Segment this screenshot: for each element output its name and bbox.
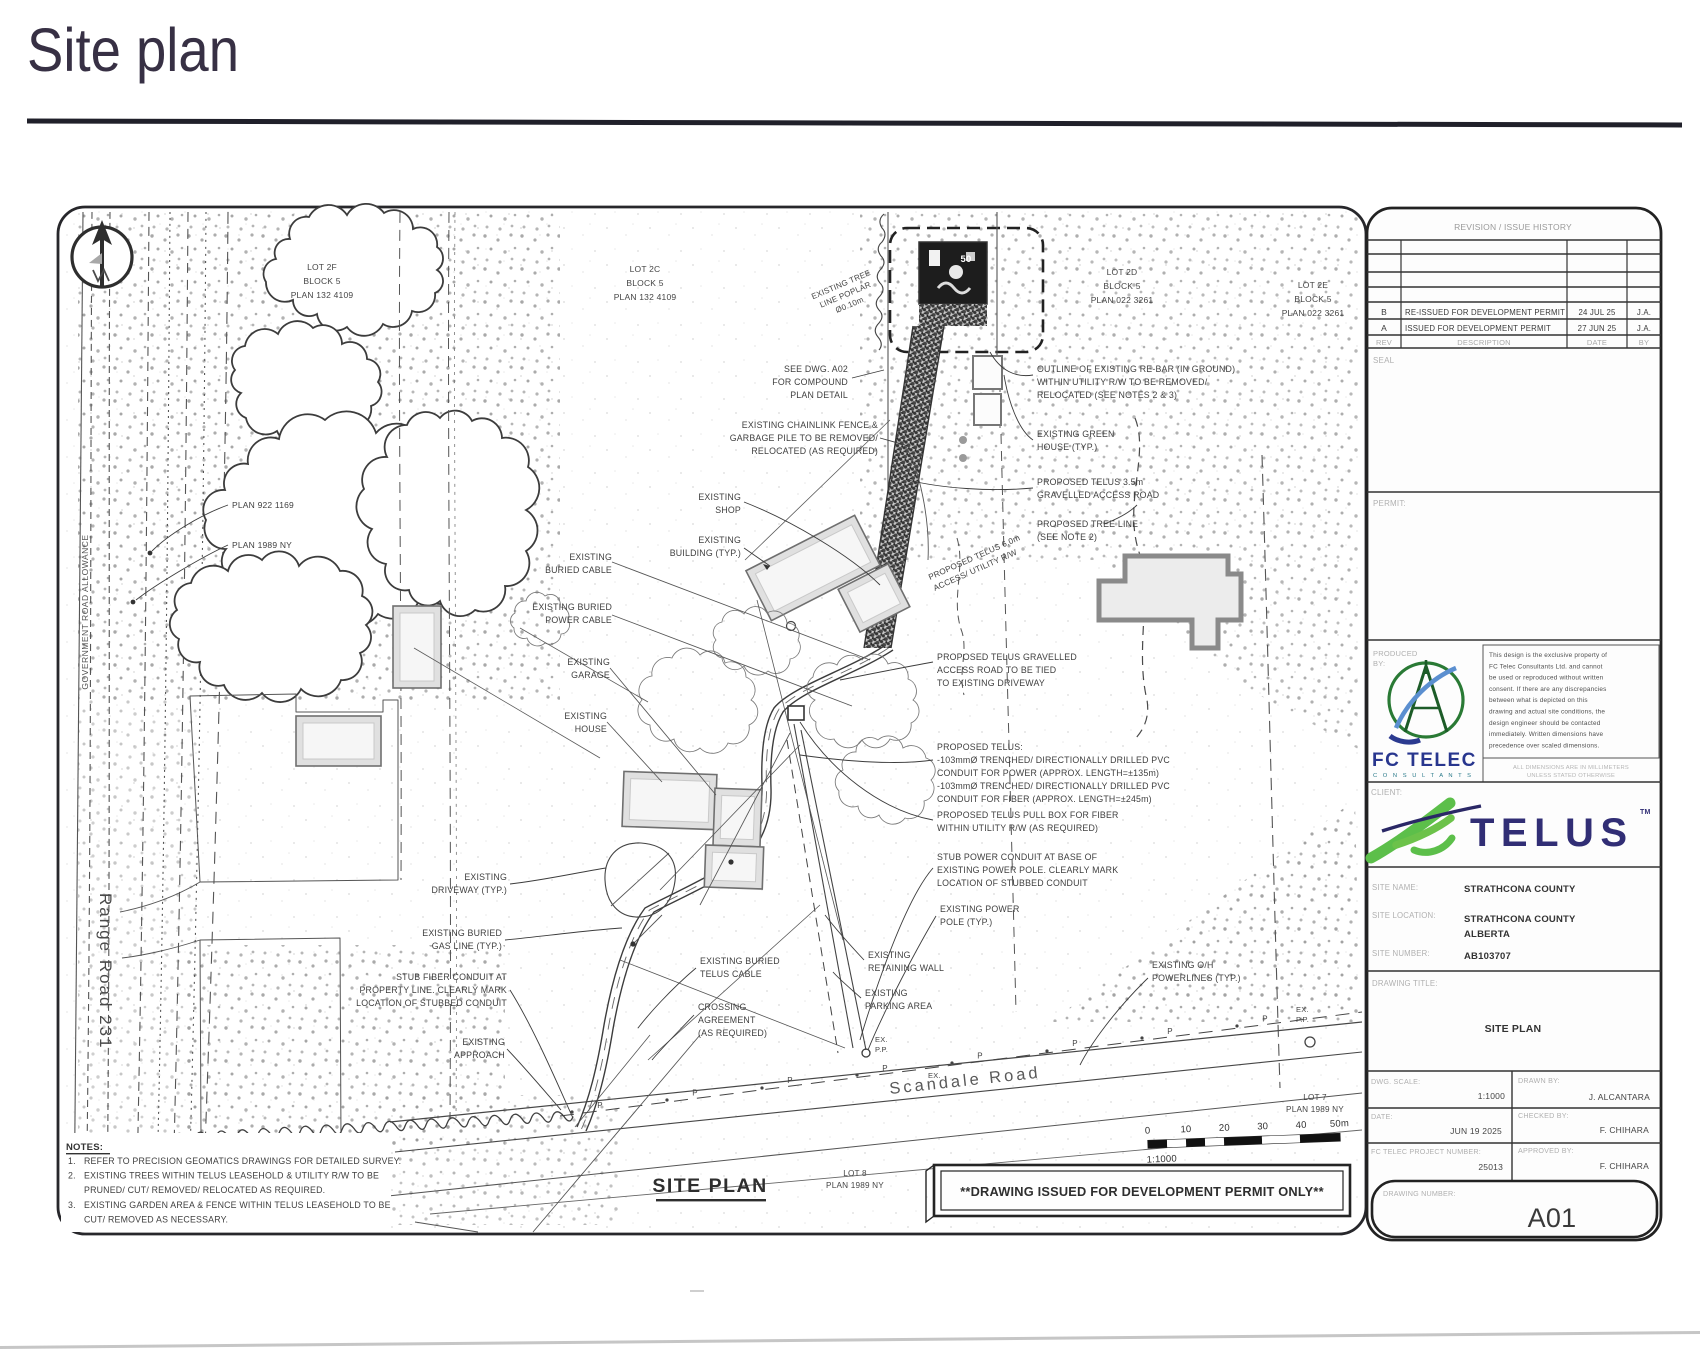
svg-text:EXISTING O/H: EXISTING O/H	[1152, 960, 1214, 970]
svg-text:DRAWN BY:: DRAWN BY:	[1518, 1076, 1560, 1085]
svg-text:EXISTING: EXISTING	[462, 1037, 505, 1047]
svg-text:CHECKED BY:: CHECKED BY:	[1518, 1111, 1569, 1120]
svg-text:ALBERTA: ALBERTA	[1464, 929, 1510, 940]
svg-text:HOUSE: HOUSE	[575, 724, 607, 734]
svg-text:GRAVELLED ACCESS ROAD: GRAVELLED ACCESS ROAD	[1037, 490, 1159, 500]
svg-text:BY:: BY:	[1373, 659, 1385, 668]
svg-text:EXISTING GREEN: EXISTING GREEN	[1037, 429, 1115, 439]
svg-text:F. CHIHARA: F. CHIHARA	[1600, 1161, 1649, 1171]
svg-text:SITE PLAN: SITE PLAN	[652, 1175, 767, 1197]
svg-text:UNLESS STATED OTHERWISE: UNLESS STATED OTHERWISE	[1527, 773, 1615, 779]
svg-text:DESCRIPTION: DESCRIPTION	[1457, 338, 1510, 347]
svg-text:BLOCK 5: BLOCK 5	[303, 276, 340, 286]
svg-text:LOCATION OF STUBBED CONDUIT: LOCATION OF STUBBED CONDUIT	[356, 998, 507, 1008]
svg-text:1.: 1.	[68, 1156, 76, 1166]
svg-text:EX.: EX.	[875, 1035, 888, 1044]
svg-text:EXISTING: EXISTING	[567, 657, 610, 667]
svg-text:GARAGE: GARAGE	[571, 670, 610, 680]
svg-text:REFER TO PRECISION GEOMATICS D: REFER TO PRECISION GEOMATICS DRAWINGS FO…	[84, 1156, 401, 1166]
svg-text:LOT 2E: LOT 2E	[1298, 280, 1328, 290]
svg-text:This design is the exclusive p: This design is the exclusive property of	[1489, 652, 1607, 659]
svg-text:-103mmØ TRENCHED/ DIRECTIONALL: -103mmØ TRENCHED/ DIRECTIONALLY DRILLED …	[937, 781, 1170, 791]
svg-text:REV: REV	[1376, 338, 1392, 347]
svg-text:PERMIT:: PERMIT:	[1373, 499, 1406, 508]
svg-text:J.A.: J.A.	[1637, 324, 1651, 333]
svg-text:20: 20	[1219, 1123, 1230, 1134]
svg-text:STRATHCONA COUNTY: STRATHCONA COUNTY	[1464, 884, 1576, 895]
svg-text:STRATHCONA COUNTY: STRATHCONA COUNTY	[1464, 914, 1576, 925]
svg-text:3.: 3.	[68, 1200, 76, 1210]
svg-text:immediately. Written dimension: immediately. Written dimensions have	[1489, 731, 1603, 738]
svg-text:1:1000: 1:1000	[1478, 1091, 1505, 1101]
svg-text:C O N S U L T A N T S: C O N S U L T A N T S	[1373, 773, 1473, 779]
svg-text:SITE NUMBER:: SITE NUMBER:	[1372, 949, 1430, 958]
svg-text:DWG. SCALE:: DWG. SCALE:	[1371, 1077, 1420, 1086]
svg-text:LOT 7: LOT 7	[1303, 1093, 1327, 1102]
svg-text:J. ALCANTARA: J. ALCANTARA	[1589, 1092, 1650, 1102]
svg-text:CROSSING: CROSSING	[698, 1002, 747, 1012]
svg-text:DATE:: DATE:	[1371, 1112, 1393, 1121]
svg-text:consent. If there are any disc: consent. If there are any discrepancies	[1489, 686, 1607, 693]
svg-text:PRODUCED: PRODUCED	[1373, 649, 1418, 658]
svg-text:2.: 2.	[68, 1171, 76, 1181]
svg-text:be used or reproduced without: be used or reproduced without written	[1489, 675, 1604, 682]
svg-text:LOT 2D: LOT 2D	[1107, 267, 1138, 277]
svg-text:PROPOSED TELUS 3.5m: PROPOSED TELUS 3.5m	[1037, 477, 1143, 487]
svg-text:**DRAWING ISSUED FOR DEVELOPME: **DRAWING ISSUED FOR DEVELOPMENT PERMIT …	[960, 1184, 1324, 1199]
svg-text:A: A	[1381, 323, 1387, 333]
svg-text:RE-ISSUED FOR DEVELOPMENT PERM: RE-ISSUED FOR DEVELOPMENT PERMIT	[1405, 308, 1565, 317]
svg-text:AB103707: AB103707	[1464, 951, 1511, 962]
svg-text:10: 10	[1180, 1124, 1191, 1135]
svg-text:LOCATION OF STUBBED CONDUIT: LOCATION OF STUBBED CONDUIT	[937, 878, 1088, 888]
svg-text:P: P	[977, 1052, 983, 1061]
svg-text:PLAN 1989 NY: PLAN 1989 NY	[1286, 1105, 1344, 1114]
svg-text:FC TELEC PROJECT NUMBER:: FC TELEC PROJECT NUMBER:	[1371, 1147, 1481, 1156]
svg-text:SITE LOCATION:: SITE LOCATION:	[1372, 911, 1436, 920]
svg-text:ISSUED FOR DEVELOPMENT PERMIT: ISSUED FOR DEVELOPMENT PERMIT	[1405, 324, 1551, 333]
svg-text:PROPOSED TREE LINE: PROPOSED TREE LINE	[1037, 519, 1138, 529]
svg-text:P: P	[1072, 1039, 1078, 1048]
svg-text:EXISTING BURIED: EXISTING BURIED	[700, 956, 780, 966]
svg-text:RELOCATED (AS REQUIRED): RELOCATED (AS REQUIRED)	[751, 446, 878, 456]
svg-text:RELOCATED (SEE NOTES 2 & 3): RELOCATED (SEE NOTES 2 & 3)	[1037, 390, 1177, 400]
svg-text:NOTES:: NOTES:	[66, 1142, 103, 1153]
svg-text:SHOP: SHOP	[715, 505, 741, 515]
svg-text:PROPERTY LINE. CLEARLY MARK: PROPERTY LINE. CLEARLY MARK	[359, 985, 507, 995]
svg-text:APPROVED BY:: APPROVED BY:	[1518, 1146, 1574, 1155]
svg-text:PLAN 922 1169: PLAN 922 1169	[232, 500, 294, 510]
svg-text:SEAL: SEAL	[1373, 356, 1395, 365]
svg-text:LOT 2F: LOT 2F	[307, 262, 337, 272]
svg-text:OUTLINE OF EXISTING RE-BAR (IN: OUTLINE OF EXISTING RE-BAR (IN GROUND)	[1037, 364, 1235, 374]
svg-text:GAS LINE (TYP.): GAS LINE (TYP.)	[432, 941, 502, 951]
svg-text:between what is depicted on th: between what is depicted on this	[1489, 697, 1588, 704]
svg-text:B: B	[1381, 307, 1387, 317]
svg-text:30: 30	[1257, 1121, 1268, 1132]
svg-text:GARBAGE PILE TO BE REMOVED/: GARBAGE PILE TO BE REMOVED/	[730, 433, 879, 443]
svg-text:PROPOSED TELUS GRAVELLED: PROPOSED TELUS GRAVELLED	[937, 652, 1077, 662]
svg-text:TELUS CABLE: TELUS CABLE	[700, 969, 762, 979]
svg-text:PLAN 022 3261: PLAN 022 3261	[1282, 308, 1345, 318]
svg-text:P: P	[787, 1076, 793, 1085]
svg-text:DRIVEWAY (TYP.): DRIVEWAY (TYP.)	[431, 885, 507, 895]
svg-text:TO EXISTING DRIVEWAY: TO EXISTING DRIVEWAY	[937, 678, 1045, 688]
svg-text:40: 40	[1295, 1120, 1306, 1131]
svg-text:0: 0	[1145, 1125, 1151, 1136]
svg-text:WITHIN UTILITY R/W (AS REQUIRE: WITHIN UTILITY R/W (AS REQUIRED)	[937, 823, 1098, 833]
svg-text:design engineer should be cont: design engineer should be contacted	[1489, 720, 1601, 727]
svg-text:PLAN 022 3261: PLAN 022 3261	[1091, 295, 1154, 305]
svg-text:CONDUIT FOR FIBER (APPROX. LEN: CONDUIT FOR FIBER (APPROX. LENGTH=±245m)	[937, 794, 1152, 804]
svg-text:PLAN 132 4109: PLAN 132 4109	[291, 290, 354, 300]
svg-text:EXISTING TREES WITHIN TELUS LE: EXISTING TREES WITHIN TELUS LEASEHOLD & …	[84, 1171, 379, 1181]
svg-text:BY: BY	[1639, 338, 1649, 347]
svg-text:RETAINING WALL: RETAINING WALL	[868, 963, 944, 973]
svg-text:50: 50	[961, 254, 972, 265]
svg-text:25013: 25013	[1478, 1162, 1503, 1172]
svg-text:F. CHIHARA: F. CHIHARA	[1600, 1125, 1649, 1135]
svg-text:JUN 19 2025: JUN 19 2025	[1450, 1126, 1502, 1136]
svg-text:WITHIN UTILITY R/W TO BE REMOV: WITHIN UTILITY R/W TO BE REMOVED/	[1037, 377, 1208, 387]
svg-text:P: P	[1262, 1015, 1268, 1024]
svg-text:PROPOSED TELUS PULL BOX FOR FI: PROPOSED TELUS PULL BOX FOR FIBER	[937, 810, 1119, 820]
svg-text:ACCESS ROAD TO BE TIED: ACCESS ROAD TO BE TIED	[937, 665, 1056, 675]
svg-text:(AS REQUIRED): (AS REQUIRED)	[698, 1028, 767, 1038]
svg-text:CONDUIT FOR POWER (APPROX. LEN: CONDUIT FOR POWER (APPROX. LENGTH=±135m)	[937, 768, 1159, 778]
svg-text:PLAN 132 4109: PLAN 132 4109	[614, 292, 677, 302]
svg-text:TELUS: TELUS	[1470, 811, 1634, 855]
svg-text:EXISTING BURIED: EXISTING BURIED	[532, 602, 612, 612]
svg-text:P.P.: P.P.	[1296, 1015, 1309, 1024]
svg-text:SITE PLAN: SITE PLAN	[1485, 1023, 1542, 1035]
svg-text:PLAN 1989 NY: PLAN 1989 NY	[232, 540, 292, 550]
svg-text:EX.: EX.	[1296, 1005, 1309, 1014]
svg-text:ALL DIMENSIONS ARE IN MILLIMET: ALL DIMENSIONS ARE IN MILLIMETERS	[1513, 765, 1629, 771]
svg-text:POWERLINES (TYP.): POWERLINES (TYP.)	[1152, 973, 1241, 983]
svg-text:POLE (TYP.): POLE (TYP.)	[940, 917, 992, 927]
svg-text:FC TELEC: FC TELEC	[1372, 750, 1477, 771]
svg-text:STUB FIBER CONDUIT AT: STUB FIBER CONDUIT AT	[396, 972, 507, 982]
svg-text:EXISTING GARDEN AREA & FENCE W: EXISTING GARDEN AREA & FENCE WITHIN TELU…	[84, 1200, 391, 1210]
svg-text:EXISTING POWER POLE. CLEARLY M: EXISTING POWER POLE. CLEARLY MARK	[937, 865, 1118, 875]
svg-text:P.P.: P.P.	[875, 1045, 888, 1054]
svg-text:STUB POWER CONDUIT AT BASE OF: STUB POWER CONDUIT AT BASE OF	[937, 852, 1098, 862]
svg-text:SEE DWG. A02: SEE DWG. A02	[784, 364, 848, 374]
svg-text:PROPOSED TELUS:: PROPOSED TELUS:	[937, 742, 1023, 752]
svg-text:Range Road 231: Range Road 231	[96, 893, 115, 1050]
svg-text:PRUNED/ CUT/ REMOVED/ RELOCATE: PRUNED/ CUT/ REMOVED/ RELOCATED AS REQUI…	[84, 1185, 325, 1195]
svg-text:EXISTING: EXISTING	[698, 535, 741, 545]
svg-text:EXISTING: EXISTING	[868, 950, 911, 960]
svg-text:P: P	[692, 1088, 698, 1097]
svg-text:PARKING AREA: PARKING AREA	[865, 1001, 932, 1011]
svg-text:Site plan: Site plan	[27, 16, 239, 84]
svg-text:APPROACH: APPROACH	[454, 1050, 505, 1060]
svg-text:PLAN 1989 NY: PLAN 1989 NY	[826, 1181, 884, 1190]
svg-text:EXISTING: EXISTING	[865, 988, 908, 998]
svg-text:27 JUN 25: 27 JUN 25	[1578, 324, 1617, 333]
svg-text:GOVERNMENT ROAD ALLOWANCE: GOVERNMENT ROAD ALLOWANCE	[80, 534, 90, 689]
svg-text:EXISTING POWER: EXISTING POWER	[940, 904, 1020, 914]
svg-text:BLOCK 5: BLOCK 5	[626, 278, 663, 288]
svg-text:LOT 8: LOT 8	[843, 1169, 867, 1178]
svg-text:AGREEMENT: AGREEMENT	[698, 1015, 756, 1025]
svg-text:-103mmØ TRENCHED/ DIRECTIONALL: -103mmØ TRENCHED/ DIRECTIONALLY DRILLED …	[937, 755, 1170, 765]
svg-text:HOUSE (TYP.): HOUSE (TYP.)	[1037, 442, 1097, 452]
svg-text:DATE: DATE	[1587, 338, 1607, 347]
svg-text:P: P	[597, 1101, 603, 1110]
svg-text:BLOCK 5: BLOCK 5	[1294, 294, 1331, 304]
svg-text:BURIED CABLE: BURIED CABLE	[545, 565, 612, 575]
svg-text:50m: 50m	[1330, 1118, 1349, 1130]
svg-text:CLIENT:: CLIENT:	[1371, 788, 1402, 797]
svg-text:BUILDING (TYP.): BUILDING (TYP.)	[670, 548, 741, 558]
svg-text:TM: TM	[1640, 809, 1651, 816]
svg-text:REVISION / ISSUE HISTORY: REVISION / ISSUE HISTORY	[1454, 222, 1572, 232]
svg-text:FC Telec Consultants Ltd. and: FC Telec Consultants Ltd. and cannot	[1489, 663, 1603, 670]
svg-text:FOR COMPOUND: FOR COMPOUND	[772, 377, 848, 387]
svg-text:POWER CABLE: POWER CABLE	[545, 615, 612, 625]
svg-text:BLOCK 5: BLOCK 5	[1103, 281, 1140, 291]
svg-text:SITE NAME:: SITE NAME:	[1372, 883, 1418, 892]
svg-text:EXISTING BURIED: EXISTING BURIED	[422, 928, 502, 938]
svg-text:24 JUL 25: 24 JUL 25	[1578, 308, 1616, 317]
svg-text:EXISTING: EXISTING	[569, 552, 612, 562]
svg-text:EXISTING CHAINLINK FENCE &: EXISTING CHAINLINK FENCE &	[742, 420, 878, 430]
svg-text:precedence over scaled dimensi: precedence over scaled dimensions.	[1489, 742, 1600, 749]
svg-text:EXISTING: EXISTING	[698, 492, 741, 502]
svg-text:EXISTING: EXISTING	[464, 872, 507, 882]
svg-text:drawing and actual site condit: drawing and actual site conditions, the	[1489, 709, 1605, 716]
svg-text:(SEE NOTE 2): (SEE NOTE 2)	[1037, 532, 1097, 542]
svg-text:LOT 2C: LOT 2C	[630, 264, 661, 274]
svg-text:EXISTING: EXISTING	[564, 711, 607, 721]
svg-text:A01: A01	[1528, 1203, 1577, 1233]
svg-text:J.A.: J.A.	[1637, 308, 1651, 317]
svg-text:CUT/ REMOVED AS NECESSARY.: CUT/ REMOVED AS NECESSARY.	[84, 1214, 228, 1224]
svg-text:P: P	[882, 1064, 888, 1073]
svg-text:DRAWING TITLE:: DRAWING TITLE:	[1372, 979, 1438, 988]
svg-text:PLAN DETAIL: PLAN DETAIL	[790, 390, 848, 400]
svg-text:DRAWING NUMBER:: DRAWING NUMBER:	[1383, 1189, 1456, 1198]
svg-text:P: P	[1167, 1027, 1173, 1036]
